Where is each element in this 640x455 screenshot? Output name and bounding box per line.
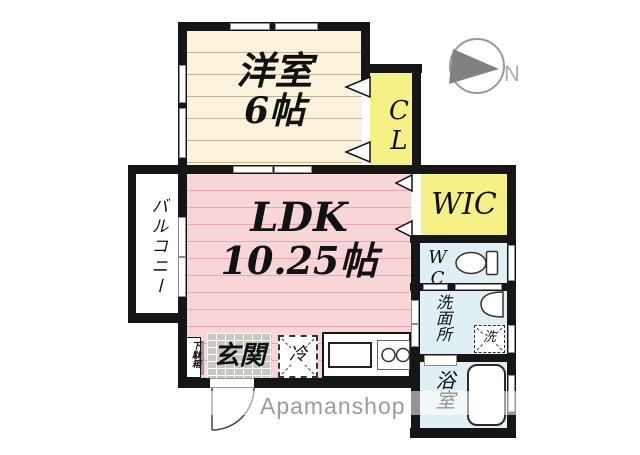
kitchen-sink bbox=[328, 342, 372, 368]
window bbox=[179, 65, 186, 103]
shoe-cabinet-label: 下駄箱 bbox=[184, 341, 199, 368]
ldk-label: LDK bbox=[187, 196, 411, 240]
wc-label: WC bbox=[422, 247, 446, 289]
balcony-label: バルコニー bbox=[136, 180, 178, 313]
wic-doorway-strip bbox=[411, 174, 421, 235]
washroom-sliding-door bbox=[411, 300, 419, 324]
entrance-opening bbox=[210, 378, 254, 388]
sliding-door bbox=[233, 166, 273, 173]
wall-segment bbox=[128, 165, 516, 174]
compass-north-icon: N bbox=[449, 39, 520, 93]
window bbox=[275, 23, 318, 30]
entrance-label: 玄関 bbox=[207, 342, 272, 371]
stove-box bbox=[377, 340, 410, 370]
western-room-size: 6帖 bbox=[187, 92, 362, 132]
western-room-label-group: 洋室 6帖 bbox=[187, 50, 362, 131]
wc-door bbox=[455, 284, 502, 290]
closet-label: CL bbox=[370, 96, 412, 156]
sliding-door bbox=[274, 166, 312, 173]
washing-machine-label: 洗 bbox=[474, 331, 505, 345]
ldk-size: 10.25帖 bbox=[187, 240, 411, 282]
window bbox=[508, 325, 515, 353]
washroom-sliding-door bbox=[411, 324, 419, 347]
western-room-label: 洋室 bbox=[187, 50, 362, 92]
wall-segment bbox=[410, 428, 516, 438]
closet-doorway-strip bbox=[362, 80, 370, 165]
window bbox=[179, 108, 186, 158]
floorplan: 洋室 6帖 LDK 10.25帖 バルコニー CL WIC WC 洗面所 洗 浴… bbox=[0, 0, 640, 455]
wall-segment bbox=[410, 235, 516, 243]
shoe-cabinet-door-line bbox=[201, 341, 204, 375]
ldk-label-group: LDK 10.25帖 bbox=[187, 196, 411, 282]
washroom-label: 洗面所 bbox=[424, 294, 450, 342]
wall-segment bbox=[128, 165, 136, 323]
wall-segment bbox=[178, 22, 370, 31]
window bbox=[508, 245, 515, 281]
bathroom-door bbox=[424, 355, 457, 366]
wic-label: WIC bbox=[421, 188, 507, 221]
balcony-sliding-door bbox=[178, 257, 186, 297]
balcony-sliding-door bbox=[178, 217, 186, 257]
watermark-text: Apamanshop bbox=[260, 393, 406, 420]
compass-n-label: N bbox=[504, 61, 520, 86]
refrigerator-label: 冷 bbox=[278, 345, 318, 365]
wall-segment bbox=[128, 313, 185, 323]
window bbox=[230, 23, 270, 30]
